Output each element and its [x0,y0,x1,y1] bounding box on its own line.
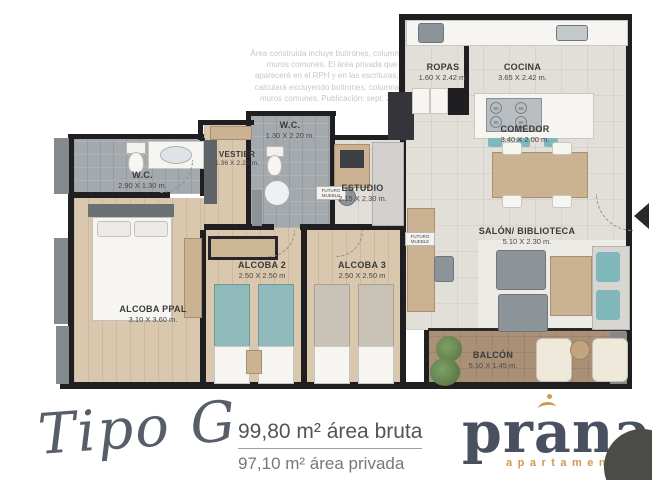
wall [246,111,336,116]
bed-single [214,284,250,348]
entry-arrow-icon [634,203,649,229]
wall [204,224,274,230]
room-wc-aux-floor [250,116,332,228]
bed-pillow-end [214,346,250,384]
stove-burner: 90 [515,102,527,114]
bed-single [314,284,350,348]
brand-diacritic-dot-icon [547,394,552,399]
biblioteca-desk [407,208,435,312]
wall [301,230,307,384]
balcony-chair [536,338,572,382]
wall [70,192,170,198]
pillar [56,326,69,384]
bed-pillow-end [258,346,294,384]
armchair [498,294,548,332]
dining-chair [502,142,522,155]
balcony-chair [592,338,628,382]
area-bruta-text: 99,80 m² área bruta [238,420,422,449]
toilet-icon [267,155,282,176]
closet-shelf [210,126,252,140]
duct-shaft [388,92,414,140]
stove-burner: 90 [515,116,527,128]
area-info: 99,80 m² área bruta 97,10 m² área privad… [238,420,422,474]
futuro-mueble-label: FUTURO MUEBLE [405,232,435,246]
dining-chair [552,195,572,208]
bed-pillow-end [314,346,350,384]
toilet-icon [128,152,144,174]
area-privada-text: 97,10 m² área privada [238,449,422,474]
pillow [134,221,168,237]
stove-burner: 90 [490,102,502,114]
sofa-cushion [596,252,620,282]
dryer-icon [430,88,448,114]
dining-chair [552,142,572,155]
bar-stool [488,138,502,147]
bed-single [358,284,394,348]
wall [424,330,429,385]
bed-pillow-end [358,346,394,384]
side-table [570,340,590,360]
pillar [54,238,68,324]
wall [448,88,469,115]
pillow [97,221,131,237]
stove-icon: 90 90 90 90 [486,98,542,132]
wall [198,120,203,140]
coffee-table [550,256,592,316]
bed-single [258,284,294,348]
washer-icon [412,88,430,114]
monitor-icon [340,150,364,168]
pillar [54,138,69,194]
sofa-cushion [596,290,620,320]
sink-icon [556,25,588,41]
plan-type-title: Tipo G [36,389,239,468]
dining-chair [502,195,522,208]
dresser [184,238,202,318]
wall [68,134,204,139]
floor-plan-image: Área construida incluye buitrones, colum… [0,0,652,480]
bed-headboard [88,204,174,217]
daybed [372,142,404,226]
shower [252,190,262,226]
plant [430,358,460,386]
desk-chair [434,256,454,282]
closet-cabinet [204,140,217,204]
sink-icon [264,180,290,206]
futuro-mueble-label: FUTURO MUEBLE [316,186,346,200]
dining-table [492,152,588,198]
stove-burner: 90 [490,116,502,128]
armchair [496,250,546,290]
fridge-icon [418,23,444,43]
nightstand [246,350,262,374]
